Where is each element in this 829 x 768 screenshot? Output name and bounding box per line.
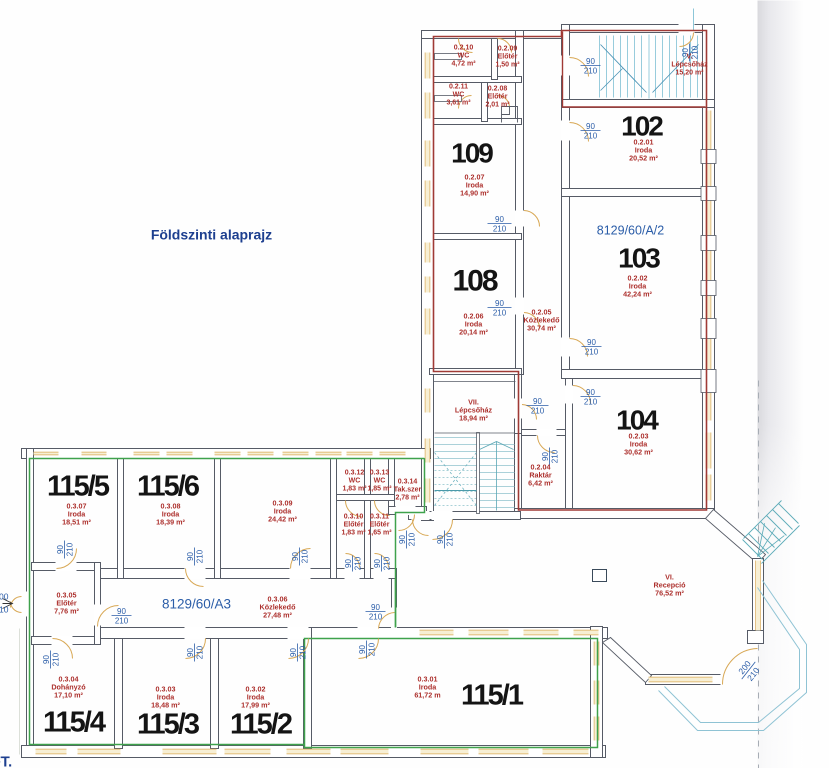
- svg-text:90: 90: [186, 648, 195, 657]
- svg-text:0.3.11: 0.3.11: [370, 514, 389, 521]
- svg-text:3,61 m²: 3,61 m²: [446, 100, 471, 107]
- svg-text:210: 210: [493, 309, 507, 318]
- svg-text:0.2.10: 0.2.10: [454, 45, 474, 52]
- svg-text:1,83 m²: 1,83 m²: [341, 530, 366, 537]
- svg-text:210: 210: [585, 348, 599, 357]
- svg-text:20,52 m²: 20,52 m²: [629, 154, 658, 163]
- svg-text:76,52 m²: 76,52 m²: [655, 589, 684, 598]
- svg-text:210: 210: [446, 532, 455, 546]
- svg-text:210: 210: [52, 652, 61, 666]
- svg-text:15,20 m²: 15,20 m²: [675, 70, 704, 77]
- svg-text:90: 90: [291, 552, 300, 561]
- svg-text:WC: WC: [349, 478, 361, 485]
- svg-text:0.2.08: 0.2.08: [488, 86, 508, 93]
- svg-text:Előtér: Előtér: [370, 522, 390, 529]
- svg-text:WC: WC: [453, 92, 465, 99]
- svg-text:7,76 m²: 7,76 m²: [54, 607, 79, 616]
- svg-text:90: 90: [533, 397, 542, 406]
- svg-text:90: 90: [495, 215, 504, 224]
- svg-text:210: 210: [115, 617, 129, 626]
- svg-text:90: 90: [117, 607, 126, 616]
- svg-text:V.: V.: [687, 54, 693, 61]
- svg-text:210: 210: [383, 556, 392, 570]
- svg-text:42,24 m²: 42,24 m²: [623, 290, 652, 299]
- svg-text:0.2.11: 0.2.11: [449, 84, 468, 91]
- svg-text:90: 90: [56, 545, 65, 554]
- svg-text:109: 109: [451, 138, 493, 169]
- svg-text:210: 210: [584, 398, 598, 407]
- svg-text:210: 210: [551, 449, 560, 463]
- svg-text:0.3.14: 0.3.14: [398, 479, 418, 486]
- svg-text:14,90 m²: 14,90 m²: [460, 189, 489, 198]
- svg-text:KFT.: KFT.: [0, 755, 12, 768]
- svg-text:210: 210: [299, 645, 308, 659]
- svg-text:90: 90: [436, 535, 445, 544]
- svg-text:210: 210: [584, 132, 598, 141]
- svg-text:0.3.12: 0.3.12: [345, 470, 365, 477]
- svg-text:8129/60/A3: 8129/60/A3: [162, 597, 231, 612]
- svg-text:24,42 m²: 24,42 m²: [268, 515, 297, 524]
- svg-text:210: 210: [354, 556, 363, 570]
- svg-text:90: 90: [587, 338, 596, 347]
- svg-text:90: 90: [42, 655, 51, 664]
- svg-text:103: 103: [618, 243, 660, 274]
- svg-text:1,85 m²: 1,85 m²: [367, 486, 392, 493]
- svg-text:90: 90: [371, 603, 380, 612]
- svg-text:115/2: 115/2: [230, 709, 292, 741]
- svg-text:18,51 m²: 18,51 m²: [62, 518, 91, 527]
- svg-text:210: 210: [531, 407, 545, 416]
- svg-text:90: 90: [186, 552, 195, 561]
- svg-text:Előtér: Előtér: [488, 94, 508, 101]
- svg-text:27,48 m²: 27,48 m²: [263, 611, 292, 620]
- svg-text:Előtér: Előtér: [344, 522, 364, 529]
- svg-text:WC: WC: [374, 478, 386, 485]
- svg-text:90: 90: [586, 122, 595, 131]
- svg-text:90: 90: [344, 559, 353, 568]
- svg-text:18,39 m²: 18,39 m²: [156, 518, 185, 527]
- svg-text:115/5: 115/5: [47, 471, 110, 503]
- svg-text:210: 210: [408, 532, 417, 546]
- svg-text:2,78 m²: 2,78 m²: [395, 495, 420, 502]
- svg-text:210: 210: [493, 225, 507, 234]
- svg-text:90: 90: [358, 645, 367, 654]
- svg-text:90: 90: [541, 452, 550, 461]
- svg-text:115/6: 115/6: [137, 471, 200, 503]
- svg-text:1,50 m²: 1,50 m²: [495, 62, 520, 69]
- svg-text:210: 210: [584, 67, 598, 76]
- svg-text:30,62 m²: 30,62 m²: [624, 448, 653, 457]
- svg-text:Tak.szer: Tak.szer: [394, 487, 422, 494]
- svg-text:2,01 m²: 2,01 m²: [485, 102, 510, 109]
- svg-text:90: 90: [398, 535, 407, 544]
- svg-text:210: 210: [301, 549, 310, 563]
- svg-text:115/4: 115/4: [43, 707, 106, 739]
- svg-text:210: 210: [196, 549, 205, 563]
- svg-text:30,74 m²: 30,74 m²: [527, 324, 556, 333]
- svg-text:61,72 m: 61,72 m: [414, 691, 440, 700]
- svg-text:90: 90: [495, 299, 504, 308]
- svg-text:Előtér: Előtér: [498, 54, 518, 61]
- svg-text:90: 90: [373, 559, 382, 568]
- svg-text:10: 10: [0, 605, 9, 615]
- svg-text:0.3.13: 0.3.13: [370, 470, 390, 477]
- svg-text:90: 90: [586, 388, 595, 397]
- svg-text:1,83 m²: 1,83 m²: [342, 486, 367, 493]
- svg-text:18,94 m²: 18,94 m²: [459, 414, 488, 423]
- svg-text:20,14 m²: 20,14 m²: [459, 328, 488, 337]
- svg-text:210: 210: [368, 642, 377, 656]
- svg-text:210: 210: [369, 613, 383, 622]
- svg-text:210: 210: [66, 542, 75, 556]
- svg-text:1,65 m²: 1,65 m²: [367, 530, 392, 537]
- svg-text:0.3.10: 0.3.10: [344, 514, 364, 521]
- svg-text:115/3: 115/3: [137, 709, 200, 741]
- svg-text:90: 90: [586, 57, 595, 66]
- svg-text:210: 210: [196, 645, 205, 659]
- svg-text:108: 108: [452, 265, 497, 298]
- svg-text:00: 00: [0, 592, 9, 602]
- svg-text:90: 90: [289, 648, 298, 657]
- svg-text:Lépcsőház: Lépcsőház: [671, 62, 708, 69]
- svg-text:4,72 m²: 4,72 m²: [451, 61, 476, 68]
- svg-text:6,42 m²: 6,42 m²: [528, 479, 553, 488]
- svg-text:17,10 m²: 17,10 m²: [54, 691, 83, 700]
- svg-text:8129/60/A/2: 8129/60/A/2: [597, 224, 664, 238]
- svg-text:Földszinti alaprajz: Földszinti alaprajz: [151, 227, 272, 243]
- svg-text:115/1: 115/1: [461, 680, 524, 712]
- svg-text:0.2.09: 0.2.09: [498, 46, 518, 53]
- svg-text:WC: WC: [458, 53, 470, 60]
